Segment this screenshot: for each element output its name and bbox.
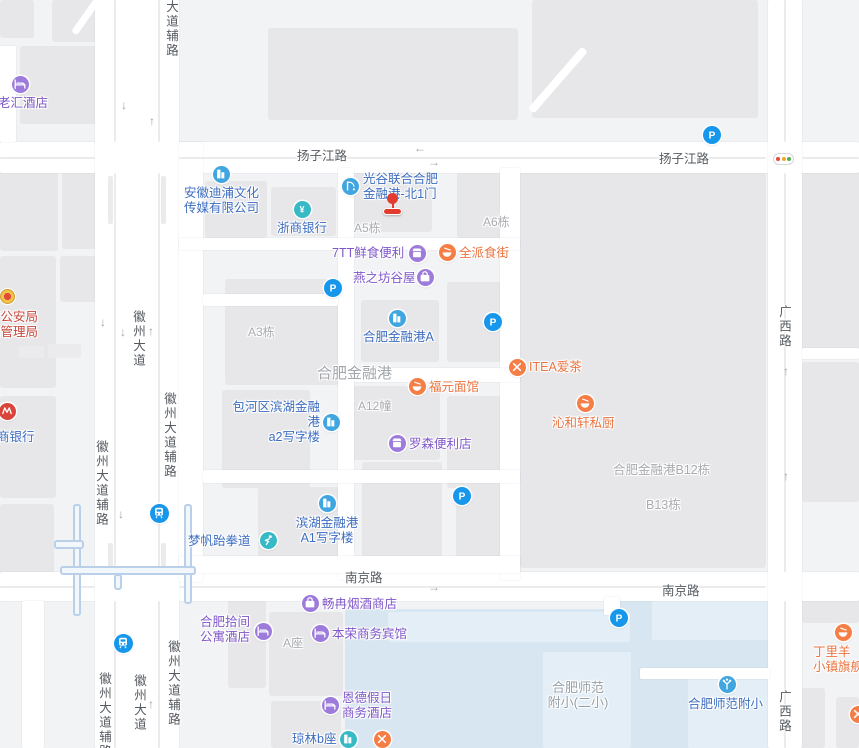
poi-text-line: 罗森便利店 (409, 437, 472, 452)
poi-label-dingliyang-flagship[interactable]: 丁里羊小镇旗舰店 (813, 645, 859, 675)
poi-text-line: 燕之坊谷屋 (353, 271, 416, 286)
building-block (802, 362, 859, 502)
road-label: 徽州大道 (131, 310, 145, 368)
building-icon[interactable] (319, 495, 336, 512)
road-median (114, 601, 116, 748)
building-icon[interactable] (340, 731, 357, 748)
road-direction-arrow: ↑ (148, 698, 154, 710)
building-icon[interactable] (389, 310, 406, 327)
poi-label-itea-tea[interactable]: ITEA爱茶 (529, 360, 582, 375)
poi-text-line: 传媒有限公司 (184, 201, 259, 216)
road-label: 大道辅路 (164, 0, 178, 58)
poi-text-line: 合肥师范附小 (688, 697, 763, 712)
poi-text-line: 本荣商务宾馆 (332, 627, 407, 642)
svg-text:P: P (330, 284, 337, 295)
destination-marker[interactable] (383, 193, 402, 216)
shop-icon[interactable] (409, 245, 426, 262)
bowl-icon[interactable] (409, 378, 426, 395)
road-label: 徽州大道辅路 (162, 392, 176, 479)
poi-text-line: 恩德假日 (342, 691, 392, 706)
metro-line (54, 540, 84, 549)
road (203, 470, 520, 483)
building-block (0, 0, 34, 38)
area-label: A座 (283, 636, 303, 651)
bed-icon[interactable] (12, 76, 29, 93)
road-direction-arrow: ↑ (149, 115, 155, 127)
bowl-icon[interactable] (835, 624, 852, 641)
poi-text-line: 商务酒店 (342, 706, 392, 721)
poi-label-benrong-hotel[interactable]: 本荣商务宾馆 (332, 627, 407, 642)
road-median (48, 344, 81, 358)
road (203, 294, 338, 306)
road-median (114, 0, 116, 142)
parking-icon[interactable]: P (484, 313, 502, 331)
poi-label-7tt-convenience[interactable]: 7TT鲜食便利 (332, 246, 404, 261)
area-label: B13栋 (646, 498, 681, 513)
road-label: 扬子江路 (659, 152, 709, 167)
svg-text:P: P (459, 492, 466, 503)
poi-label-yanzhifang-guwu[interactable]: 燕之坊谷屋 (353, 271, 416, 286)
building-block (0, 163, 58, 251)
road (640, 668, 770, 679)
road-median (18, 346, 44, 358)
road-label: 徽州大道辅路 (166, 640, 180, 727)
bag-icon[interactable] (302, 595, 319, 612)
poi-text-line: 畅冉烟酒商店 (322, 597, 397, 612)
building-block (62, 167, 98, 249)
poi-text-line: 沁和轩私厨 (552, 416, 615, 431)
poi-label-huishang-bank[interactable]: 商银行 (0, 430, 35, 445)
shop-icon[interactable] (389, 435, 406, 452)
forkknife-icon[interactable] (509, 359, 526, 376)
bed-icon[interactable] (255, 623, 272, 640)
metro-line (60, 566, 196, 575)
poi-label-hefei-normal-primary[interactable]: 合肥师范附小 (688, 697, 763, 712)
road (0, 46, 16, 142)
mlogo-icon[interactable] (0, 403, 16, 420)
road-direction-arrow: ↓ (100, 316, 106, 328)
building-block (0, 504, 54, 576)
poi-label-lawson[interactable]: 罗森便利店 (409, 437, 472, 452)
area-label: A5栋 (354, 221, 381, 236)
poi-text-line: A1写字楼 (292, 531, 362, 546)
poi-text-line: 合肥金融港A (363, 330, 434, 345)
road-label: 扬子江路 (297, 149, 347, 164)
poi-text-line: a2写字楼 (222, 430, 320, 445)
road-direction-arrow: ↑ (783, 470, 789, 482)
poi-text-line: 商银行 (0, 430, 35, 445)
poi-label-laohui-hotel[interactable]: 老汇酒店 (0, 96, 48, 111)
poi-text-line: 光谷联合合肥 (363, 172, 438, 187)
map-canvas[interactable]: ↓↑←→↓↓↑↓↑→↑↑扬子江路扬子江路南京路南京路大道辅路徽州大道徽州大道辅路… (0, 0, 859, 748)
road-label: 徽州大道辅路 (94, 440, 108, 527)
road (95, 0, 179, 748)
road-median (114, 173, 116, 572)
road-direction-arrow: → (428, 581, 440, 593)
building-block (20, 46, 100, 124)
metro-line (114, 574, 122, 590)
road-median (802, 157, 859, 159)
svg-text:P: P (709, 131, 716, 142)
poi-label-baohe-a2-tower[interactable]: 包河区滨湖金融港a2写字楼 (222, 400, 320, 445)
bowl-icon[interactable] (577, 395, 594, 412)
poi-label-quanpai-food-street[interactable]: 全派食街 (459, 246, 509, 261)
traffic-light-icon (773, 153, 794, 165)
parking-icon[interactable]: P (324, 279, 342, 297)
road-label: 南京路 (345, 571, 383, 586)
forkknife-icon[interactable] (850, 706, 859, 723)
area-label: 合肥金融港B12栋 (613, 463, 710, 478)
road-direction-arrow: ↑ (148, 325, 154, 337)
road-label: 广西路 (777, 305, 791, 349)
area-label: 合肥师范 附小(二小) (540, 680, 616, 710)
bag-icon[interactable] (417, 269, 434, 286)
poi-text-line: 市公安局 (0, 310, 38, 325)
poi-label-public-security-bureau[interactable]: 市公安局通管理局 (0, 310, 38, 340)
road-label: 南京路 (662, 584, 700, 599)
metro-line (73, 504, 81, 616)
poi-text-line: 7TT鲜食便利 (332, 246, 404, 261)
road-median (158, 601, 160, 748)
building-block (268, 28, 518, 120)
poi-label-ende-holiday-hotel[interactable]: 恩德假日商务酒店 (342, 691, 392, 721)
road-direction-arrow: → (428, 156, 440, 168)
area-label: A12幢 (358, 399, 391, 414)
road-median (784, 0, 786, 142)
building-block (802, 166, 859, 350)
svg-text:P: P (616, 614, 623, 625)
building-block (836, 697, 859, 748)
school-icon[interactable] (719, 676, 736, 693)
building-block (532, 0, 758, 118)
road-direction-arrow: ↓ (121, 99, 127, 111)
poi-text-line: 滨湖金融港 (292, 516, 362, 531)
poi-label-qionglin-b[interactable]: 琼林b座 (292, 732, 336, 747)
metro-station-icon[interactable] (150, 504, 169, 523)
road-median (108, 176, 113, 224)
road-direction-arrow: ↑ (783, 365, 789, 377)
marker-gate-bar (383, 208, 402, 215)
building-block (60, 256, 100, 302)
poi-label-zheshang-bank[interactable]: 浙商银行 (277, 221, 327, 236)
poi-label-anhui-dipu-media[interactable]: 安徽迪浦文化传媒有限公司 (184, 186, 259, 216)
area-label: 合肥金融港 (317, 366, 392, 381)
poi-text-line: ITEA爱茶 (529, 360, 582, 375)
poi-text-line: 安徽迪浦文化 (184, 186, 259, 201)
svg-text:P: P (490, 318, 497, 329)
school-building (652, 598, 770, 640)
yuan-icon[interactable]: ¥ (294, 201, 311, 218)
forkknife-icon[interactable] (374, 731, 391, 748)
road-median (158, 0, 160, 142)
poi-label-hefei-shijian-apartment[interactable]: 合肥拾间公寓酒店 (200, 615, 250, 645)
poi-text-line: 公寓酒店 (200, 630, 250, 645)
area-label: A6栋 (483, 215, 510, 230)
road (802, 348, 859, 359)
road-median (161, 176, 166, 224)
area-label: A3栋 (248, 325, 275, 340)
road-median (0, 157, 95, 159)
svg-text:¥: ¥ (300, 204, 305, 214)
poi-text-line: 丁里羊 (813, 645, 859, 660)
building-icon[interactable] (213, 166, 230, 183)
poi-label-hefei-financial-port-a[interactable]: 合肥金融港A (363, 330, 434, 345)
poi-label-changran-tobacco[interactable]: 畅冉烟酒商店 (322, 597, 397, 612)
road-direction-arrow: ↓ (120, 326, 126, 338)
bowl-icon[interactable] (439, 244, 456, 261)
school-building (388, 612, 630, 642)
policebadge-icon[interactable] (0, 289, 15, 304)
poi-label-mengfan-taekwondo[interactable]: 梦帆跆拳道 (188, 534, 251, 549)
building-block (269, 612, 343, 696)
parking-icon[interactable]: P (610, 609, 628, 627)
road-label: 广西路 (777, 690, 791, 734)
road (22, 601, 44, 748)
building-icon[interactable] (323, 414, 340, 431)
poi-text-line: 全派食街 (459, 246, 509, 261)
fist-icon[interactable] (260, 532, 277, 549)
gate-icon[interactable] (342, 178, 359, 195)
poi-text-line: 浙商银行 (277, 221, 327, 236)
bed-icon[interactable] (322, 697, 339, 714)
road-label: 徽州大道辅路 (97, 672, 111, 748)
poi-text-line: 小镇旗舰店 (813, 660, 859, 675)
poi-label-fuyuan-noodles[interactable]: 福元面馆 (429, 380, 479, 395)
metro-station-icon[interactable] (114, 634, 133, 653)
poi-text-line: 合肥拾间 (200, 615, 250, 630)
poi-text-line: 老汇酒店 (0, 96, 48, 111)
poi-label-qinhexuan-kitchen[interactable]: 沁和轩私厨 (552, 416, 615, 431)
metro-line (184, 504, 192, 604)
road-direction-arrow: ← (414, 142, 426, 154)
parking-icon[interactable]: P (453, 487, 471, 505)
road-direction-arrow: ↓ (118, 508, 124, 520)
poi-label-binhu-a1-tower[interactable]: 滨湖金融港A1写字楼 (292, 516, 362, 546)
poi-text-line: 琼林b座 (292, 732, 336, 747)
poi-text-line: 通管理局 (0, 325, 38, 340)
parking-icon[interactable]: P (703, 126, 721, 144)
poi-text-line: 福元面馆 (429, 380, 479, 395)
bed-icon[interactable] (312, 625, 329, 642)
poi-text-line: 梦帆跆拳道 (188, 534, 251, 549)
road-label: 徽州大道 (132, 674, 146, 732)
poi-text-line: 包河区滨湖金融港 (222, 400, 320, 430)
